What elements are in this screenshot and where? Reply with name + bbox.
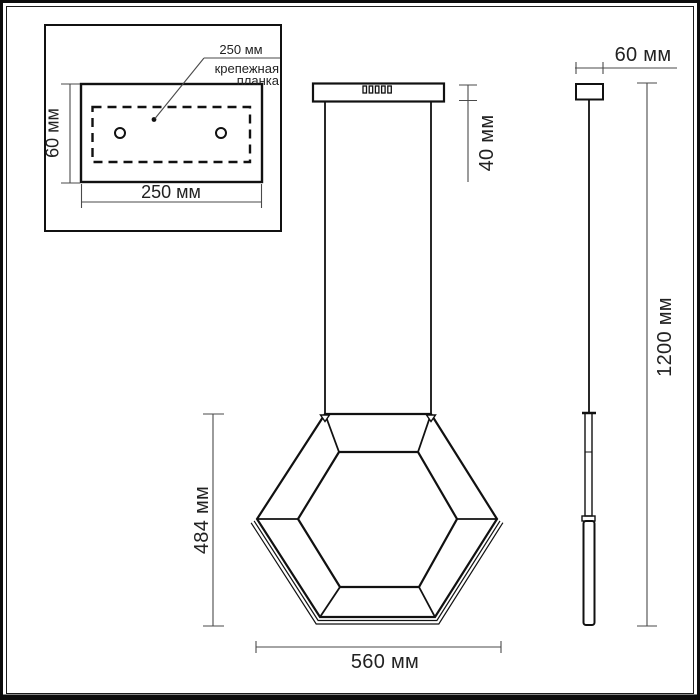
side-led-tube — [584, 521, 595, 625]
corner-connector-bottom-left — [320, 587, 340, 617]
canopy-vent-slot — [363, 86, 367, 93]
side-canopy-outline — [576, 84, 603, 100]
corner-connector-bottom-right — [419, 587, 435, 617]
leader-line — [155, 58, 204, 119]
mounting-hole-left — [115, 128, 125, 138]
plate-width-label: 250 мм — [219, 42, 262, 57]
frame-bottom-edge — [0, 695, 700, 700]
plate-caption-line2: планка — [237, 73, 280, 88]
canopy-vent-slot — [382, 86, 386, 93]
canopy-vent-slot — [369, 86, 373, 93]
side-canopy-width-dim-label: 60 мм — [615, 44, 672, 66]
side-rod-upper — [585, 413, 592, 516]
shade-width-dim-label: 560 мм — [351, 651, 419, 673]
mounting-hole-right — [216, 128, 226, 138]
inset-height-dim-label: 60 мм — [42, 108, 62, 158]
corner-connector-top-left — [325, 414, 339, 452]
shade-height-dim-label: 484 мм — [191, 486, 213, 554]
hexagon-inner-outline — [298, 452, 457, 587]
frame-inner-border — [7, 7, 694, 694]
canopy-height-dim-label: 40 мм — [476, 115, 498, 172]
total-height-dim-label: 1200 мм — [654, 297, 676, 377]
canopy-vent-slot — [375, 86, 379, 93]
canopy-vent-slot — [388, 86, 392, 93]
hexagon-profile-line-2 — [251, 523, 503, 624]
inset-width-dim-label: 250 мм — [141, 182, 201, 202]
dimension-drawing: 250 мм крепежная планка 60 мм 250 мм 40 … — [0, 0, 700, 700]
